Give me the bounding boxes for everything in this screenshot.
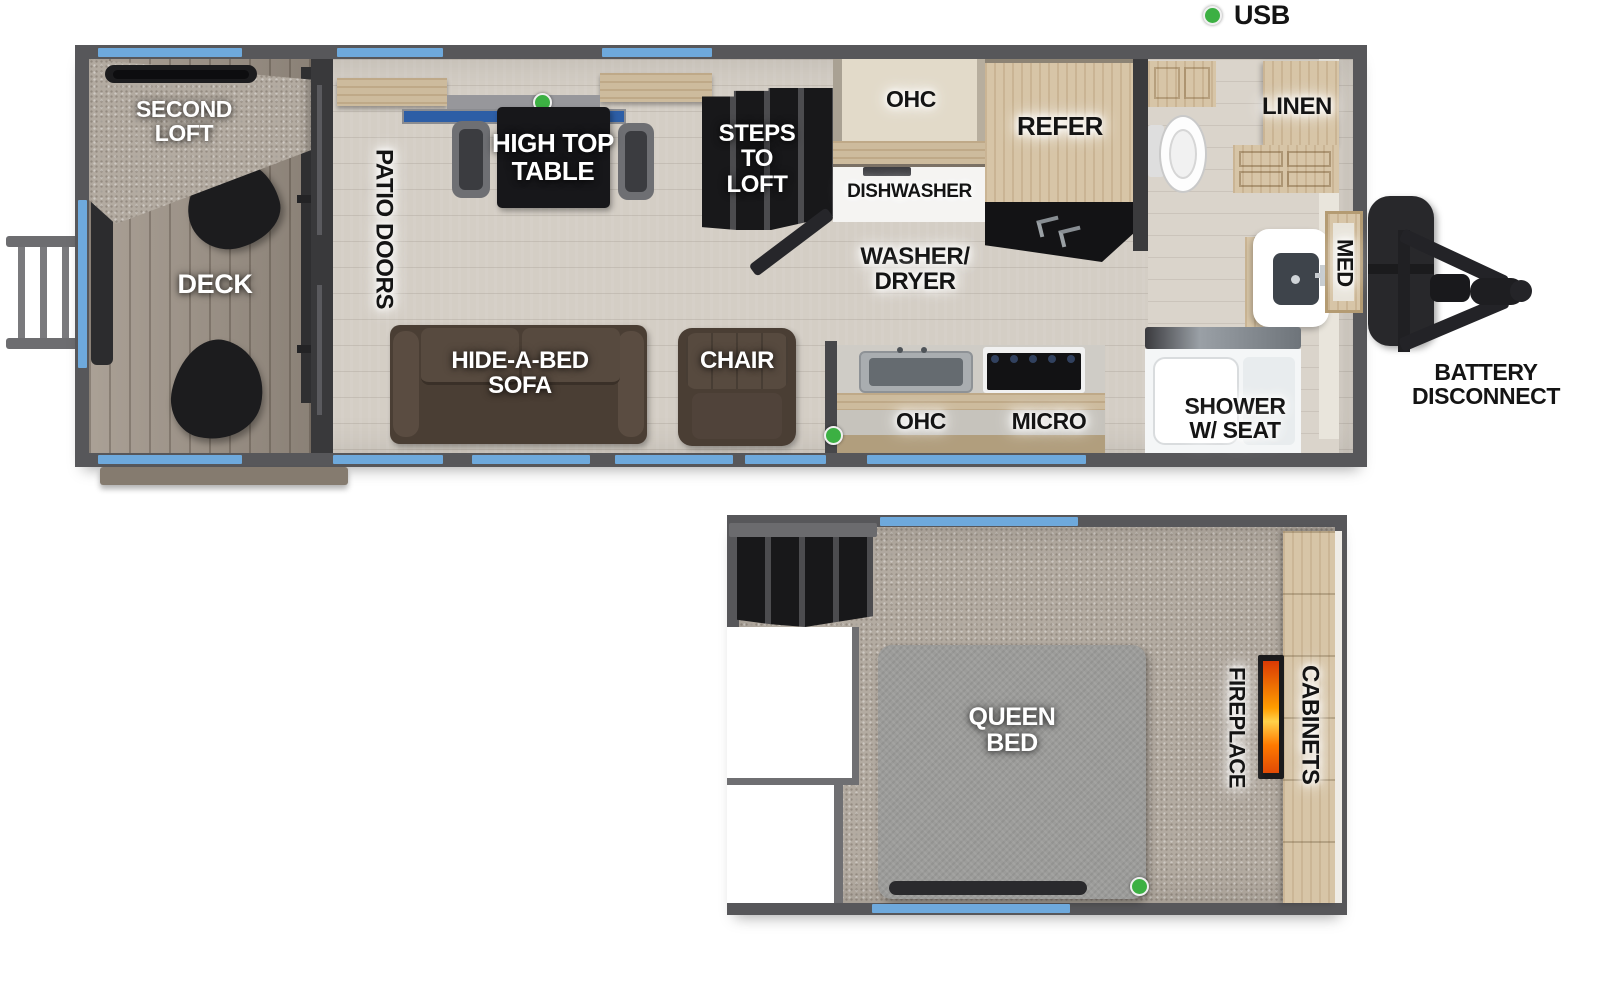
usb-port-icon xyxy=(1130,877,1149,896)
toilet-lid xyxy=(1169,129,1197,179)
linen-label: LINEN xyxy=(1247,91,1347,123)
kitchen-sink-basin xyxy=(869,358,963,386)
burner-icon xyxy=(1067,355,1075,363)
washer-dryer-label: WASHER/ DRYER xyxy=(844,241,986,297)
tongue-jack xyxy=(1430,274,1470,302)
steps-to-loft-label: STEPS TO LOFT xyxy=(707,103,807,215)
micro-label: MICRO xyxy=(999,407,1099,435)
shower-label: SHOWER W/ SEAT xyxy=(1171,391,1299,445)
sink-drain xyxy=(1291,275,1300,284)
shower-glass xyxy=(1145,327,1301,349)
faucet-icon xyxy=(921,347,927,353)
window xyxy=(98,455,242,464)
usb-port-icon xyxy=(824,426,843,445)
bath-divider-wall xyxy=(1133,59,1148,251)
chair-seat xyxy=(692,393,782,439)
loft-steps xyxy=(737,537,873,627)
sofa-label: HIDE-A-BED SOFA xyxy=(430,345,610,401)
burner-icon xyxy=(991,355,999,363)
loft-opening xyxy=(727,785,843,903)
deck-step xyxy=(100,467,348,485)
usb-legend-label: USB xyxy=(1234,0,1314,30)
loft-wall-face xyxy=(1335,531,1342,903)
window xyxy=(98,48,242,57)
sofa-armrest xyxy=(618,331,644,437)
counter-shelf xyxy=(833,141,986,167)
floorplan-canvas: USB SECOND LOFT DECK PATIO DOORS xyxy=(0,0,1600,1007)
cabinet-door xyxy=(1154,67,1180,99)
burner-icon xyxy=(1010,355,1018,363)
overhead-cabinet xyxy=(337,78,447,106)
counter-base xyxy=(837,435,1105,453)
rear-ladder-rail xyxy=(6,338,78,349)
patio-door-glass xyxy=(317,85,322,235)
refer-label: REFER xyxy=(1005,109,1115,145)
high-top-table-label: HIGH TOP TABLE xyxy=(483,115,623,201)
window xyxy=(333,455,443,464)
second-loft-label: SECOND LOFT xyxy=(99,93,269,149)
usb-legend-icon xyxy=(1203,6,1222,25)
window xyxy=(880,517,1078,526)
cabinet-door xyxy=(1287,151,1331,167)
queen-bed-label: QUEEN BED xyxy=(932,700,1092,760)
loft-opening xyxy=(727,627,859,785)
window xyxy=(78,200,87,368)
window xyxy=(867,455,1086,464)
bed-footboard xyxy=(889,881,1087,895)
stool-seat xyxy=(625,131,647,192)
battery-disconnect-label: BATTERY DISCONNECT xyxy=(1388,356,1584,412)
window xyxy=(337,48,443,57)
rear-ladder-rung xyxy=(62,247,69,338)
overhead-cabinet xyxy=(600,73,712,102)
rear-ladder-rung xyxy=(18,247,25,338)
burner-icon xyxy=(1029,355,1037,363)
patio-doors-label: PATIO DOORS xyxy=(365,137,403,322)
fireplace-flame-icon xyxy=(1263,661,1279,773)
med-label: MED xyxy=(1331,225,1359,301)
window xyxy=(615,455,733,464)
deck-label: DECK xyxy=(155,267,275,301)
faucet-icon xyxy=(897,347,903,353)
queen-bed xyxy=(878,645,1146,899)
roof-vent-inner xyxy=(113,70,249,79)
window xyxy=(472,455,590,464)
cabinet-door xyxy=(1239,171,1283,187)
rear-ladder-rung xyxy=(40,247,47,338)
main-floor: SECOND LOFT DECK PATIO DOORS HIGH TOP TA… xyxy=(75,45,1367,467)
fireplace-label: FIREPLACE xyxy=(1221,633,1253,823)
cabinets-label: CABINETS xyxy=(1293,625,1327,825)
burner-icon xyxy=(1048,355,1056,363)
loft-step-cap xyxy=(729,523,877,537)
window xyxy=(745,455,826,464)
window xyxy=(872,904,1070,913)
cabinet-door xyxy=(1184,67,1210,99)
hitch-ball-socket xyxy=(1510,280,1532,302)
sofa-armrest xyxy=(393,331,419,437)
dishwasher-label: DISHWASHER xyxy=(837,179,982,205)
ohc-upper-label: OHC xyxy=(861,83,961,115)
patio-door-wall xyxy=(311,59,333,453)
window xyxy=(602,48,712,57)
rear-ladder-rail xyxy=(6,236,78,247)
stool-seat xyxy=(459,129,483,190)
loft: FIREPLACE CABINETS QUEEN BED xyxy=(727,515,1347,915)
dishwasher-handle xyxy=(863,167,911,176)
cabinet-door xyxy=(1239,151,1283,167)
ohc-lower-label: OHC xyxy=(873,407,969,435)
chair-label: CHAIR xyxy=(683,333,791,389)
cabinet-door xyxy=(1287,171,1331,187)
patio-door-glass xyxy=(317,285,322,415)
